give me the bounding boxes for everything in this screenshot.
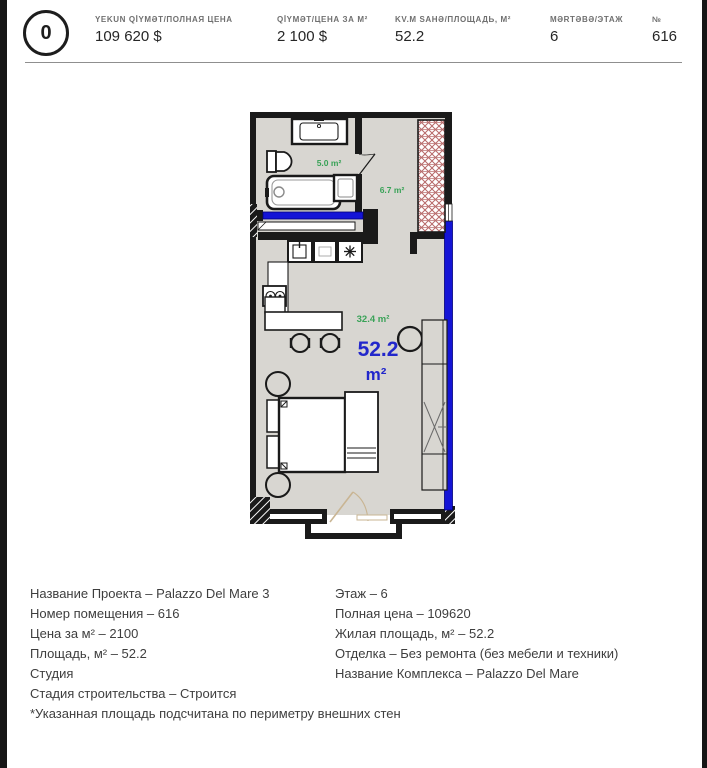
lamp-circle [398, 327, 422, 351]
bed [267, 398, 345, 472]
stat-value: 6 [550, 28, 623, 45]
living-area-label: 32.4 m² [357, 314, 390, 325]
right-closet [422, 320, 447, 490]
stat-price-per-m2: QİYMƏT/ЦЕНА ЗА М² 2 100 $ [277, 15, 368, 45]
total-area-value: 52.2 [358, 338, 399, 361]
screen-right-border [702, 0, 707, 768]
kitchen-ledge [258, 222, 355, 230]
balcony [305, 524, 402, 539]
detail-build-stage: Стадия строительства – Строится [30, 684, 401, 704]
bench [345, 392, 378, 472]
screen-left-border [0, 0, 7, 768]
detail-complex-name: Название Комплекса – Palazzo Del Mare [335, 664, 618, 684]
stat-label: MƏRTƏBƏ/ЭТАЖ [550, 15, 623, 24]
hallway-area-label: 6.7 m² [380, 185, 405, 195]
detail-footnote: *Указанная площадь подсчитана по перимет… [30, 704, 401, 724]
detail-living-area: Жилая площадь, м² – 52.2 [335, 624, 618, 644]
detail-floor: Этаж – 6 [335, 584, 618, 604]
total-area-unit: m² [366, 365, 387, 384]
wardrobe-hatched [418, 120, 445, 232]
details-right-column: Этаж – 6 Полная цена – 109620 Жилая площ… [335, 584, 618, 684]
stat-value: 109 620 $ [95, 28, 233, 45]
bathroom-sink [292, 117, 347, 144]
stat-value: 2 100 $ [277, 28, 368, 45]
washing-machine [334, 175, 357, 201]
toilet [267, 151, 292, 172]
stat-number: № 616 [652, 15, 677, 45]
floor-plan-image[interactable]: 5.0 m² 6.7 m² 32.4 m² 52.2 m² [250, 112, 455, 540]
stat-floor: MƏRTƏBƏ/ЭТАЖ 6 [550, 15, 623, 45]
plant-top [266, 372, 290, 396]
stat-label: YEKUN QİYMƏT/ПОЛНАЯ ЦЕНА [95, 15, 233, 24]
right-wall-window [445, 204, 452, 221]
kitchen-counter [288, 241, 362, 262]
plant-bottom [266, 473, 290, 497]
stat-total-price: YEKUN QİYMƏT/ПОЛНАЯ ЦЕНА 109 620 $ [95, 15, 233, 45]
stat-value: 616 [652, 28, 677, 45]
detail-finishing: Отделка – Без ремонта (без мебели и техн… [335, 644, 618, 664]
header-divider [25, 62, 682, 63]
bathroom-area-label: 5.0 m² [317, 158, 342, 168]
bathtub [265, 176, 340, 209]
stat-area: KV.M SAHƏ/ПЛОЩАДЬ, М² 52.2 [395, 15, 511, 45]
listing-count-badge[interactable]: 0 [23, 10, 69, 56]
stat-label: KV.M SAHƏ/ПЛОЩАДЬ, М² [395, 15, 511, 24]
stat-label: QİYMƏT/ЦЕНА ЗА М² [277, 15, 368, 24]
stat-label: № [652, 15, 677, 24]
stat-value: 52.2 [395, 28, 511, 45]
detail-full-price: Полная цена – 109620 [335, 604, 618, 624]
